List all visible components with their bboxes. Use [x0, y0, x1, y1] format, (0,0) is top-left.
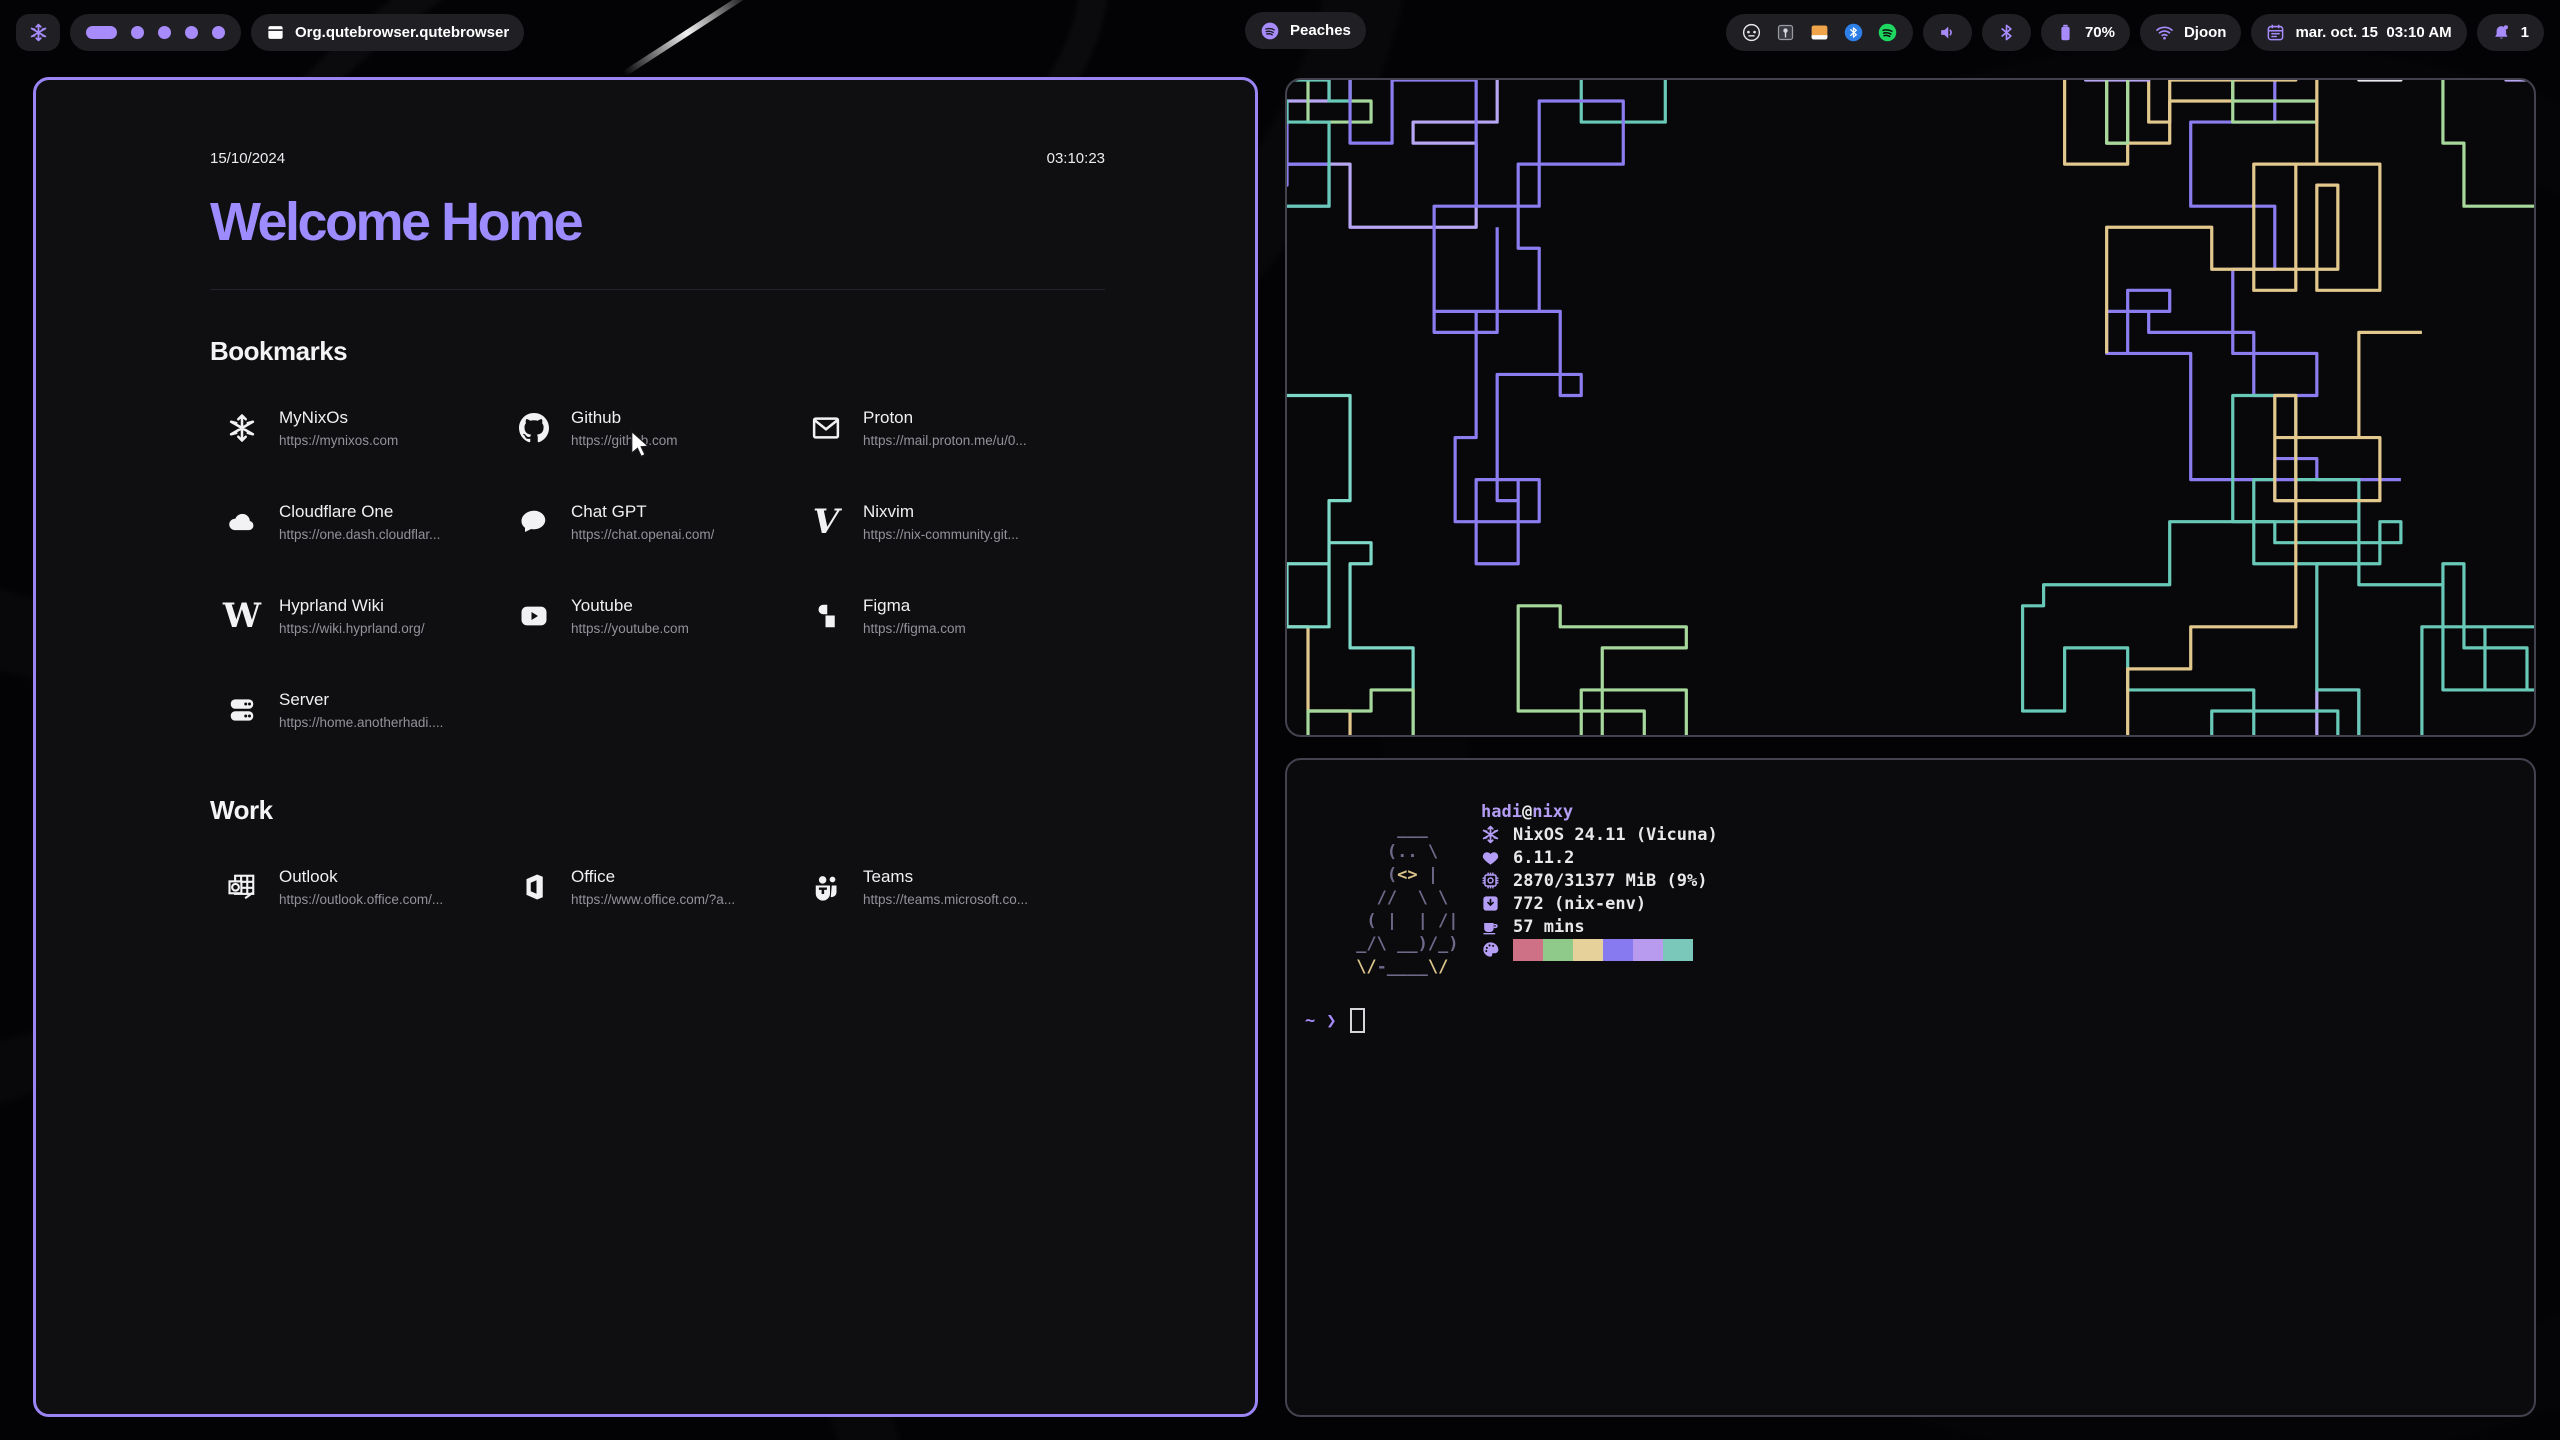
- calendar-icon: [2266, 23, 2285, 42]
- palette-swatch: [1573, 939, 1603, 961]
- palette-icon: [1481, 940, 1500, 959]
- focused-window-pill: Org.qutebrowser.qutebrowser: [251, 14, 524, 51]
- palette-swatch: [1633, 939, 1663, 961]
- bluetooth-icon: [1997, 23, 2016, 42]
- workspaces-indicator[interactable]: [70, 14, 241, 51]
- startpage-date: 15/10/2024: [210, 150, 285, 167]
- battery-indicator[interactable]: 70%: [2041, 14, 2130, 51]
- workspace-dot[interactable]: [212, 26, 225, 39]
- bookmark-url: https://mynixos.com: [279, 433, 398, 448]
- fastfetch-value: NixOS 24.11 (Vicuna): [1513, 825, 1718, 845]
- bar-left-cluster: Org.qutebrowser.qutebrowser: [16, 14, 524, 51]
- packages-box-icon: [1481, 894, 1500, 913]
- ascii-line: ( | | /|: [1305, 910, 1459, 933]
- system-tray[interactable]: [1726, 14, 1913, 51]
- fastfetch-row: 57 mins: [1481, 915, 1718, 938]
- bookmark-url: https://mail.proton.me/u/0...: [863, 433, 1027, 448]
- office-icon: [514, 867, 554, 907]
- notification-count: 1: [2521, 24, 2529, 41]
- bookmark-item-office[interactable]: Officehttps://www.office.com/?a...: [502, 858, 794, 916]
- pipes-terminal-window[interactable]: [1285, 78, 2536, 737]
- bar-right-cluster: 70% Djoon mar. oct. 15 03:10 AM 1: [1726, 14, 2544, 51]
- fastfetch-value: 6.11.2: [1513, 848, 1574, 868]
- bookmark-name: Office: [571, 867, 735, 887]
- bookmark-url: https://github.com: [571, 433, 678, 448]
- fastfetch-palette-row: [1481, 938, 1718, 961]
- bookmark-name: Teams: [863, 867, 1028, 887]
- workspace-active[interactable]: [86, 26, 117, 39]
- bookmark-item-hyprland-wiki[interactable]: WHyprland Wikihttps://wiki.hyprland.org/: [210, 587, 502, 645]
- bookmark-grid: MyNixOshttps://mynixos.comGithubhttps://…: [210, 399, 1105, 739]
- ascii-line: \/-____\/: [1305, 956, 1459, 979]
- ascii-line: ___: [1305, 818, 1459, 841]
- bookmark-url: https://outlook.office.com/...: [279, 892, 443, 907]
- outlook-icon: [222, 867, 262, 907]
- fastfetch-value: 57 mins: [1513, 917, 1585, 937]
- mail-icon: [806, 408, 846, 448]
- bookmark-url: https://home.anotherhadi....: [279, 715, 443, 730]
- focused-window-title: Org.qutebrowser.qutebrowser: [295, 24, 509, 41]
- bookmark-item-teams[interactable]: Teamshttps://teams.microsoft.co...: [794, 858, 1086, 916]
- files-tray-icon[interactable]: [1809, 22, 1830, 43]
- workspace-dot[interactable]: [131, 26, 144, 39]
- uptime-mug-icon: [1481, 917, 1500, 936]
- desktop: Org.qutebrowser.qutebrowser Peaches 70% …: [0, 0, 2560, 1440]
- bookmark-item-cloudflare-one[interactable]: Cloudflare Onehttps://one.dash.cloudflar…: [210, 493, 502, 551]
- ascii-line: (.. \: [1305, 841, 1459, 864]
- ascii-line: // \ \: [1305, 887, 1459, 910]
- bookmark-name: Nixvim: [863, 502, 1019, 522]
- bookmark-name: Proton: [863, 408, 1027, 428]
- bookmark-grid: Outlookhttps://outlook.office.com/...Off…: [210, 858, 1105, 916]
- github-icon: [514, 408, 554, 448]
- camera-tray-icon[interactable]: [1741, 22, 1762, 43]
- fastfetch-info: hadi@nixyNixOS 24.11 (Vicuna)6.11.22870/…: [1481, 800, 1718, 961]
- nixvim-letter-icon: V: [806, 502, 846, 542]
- bookmark-name: Cloudflare One: [279, 502, 440, 522]
- bookmark-url: https://youtube.com: [571, 621, 689, 636]
- bookmark-name: Server: [279, 690, 443, 710]
- divider: [210, 289, 1105, 290]
- bookmark-url: https://chat.openai.com/: [571, 527, 714, 542]
- bookmark-item-proton[interactable]: Protonhttps://mail.proton.me/u/0...: [794, 399, 1086, 457]
- kernel-heart-icon: [1481, 848, 1500, 867]
- nixos-icon: [222, 408, 262, 448]
- workspace-dot[interactable]: [185, 26, 198, 39]
- bookmark-item-outlook[interactable]: Outlookhttps://outlook.office.com/...: [210, 858, 502, 916]
- status-bar: Org.qutebrowser.qutebrowser Peaches 70% …: [0, 12, 2560, 52]
- page-title: Welcome Home: [210, 191, 1105, 253]
- bookmark-item-figma[interactable]: Figmahttps://figma.com: [794, 587, 1086, 645]
- fastfetch-value: 772 (nix-env): [1513, 894, 1646, 914]
- chat-icon: [514, 502, 554, 542]
- spotify-tray-icon[interactable]: [1877, 22, 1898, 43]
- clock-pill[interactable]: mar. oct. 15 03:10 AM: [2251, 14, 2466, 51]
- bookmark-url: https://www.office.com/?a...: [571, 892, 735, 907]
- fastfetch-row: 2870/31377 MiB (9%): [1481, 869, 1718, 892]
- prompt-path: ~: [1305, 1011, 1315, 1031]
- bookmark-name: Github: [571, 408, 678, 428]
- network-indicator[interactable]: Djoon: [2140, 14, 2242, 51]
- section-heading: Work: [210, 795, 1105, 826]
- bluetooth-tray-icon[interactable]: [1843, 22, 1864, 43]
- startpage-header: 15/10/2024 03:10:23: [210, 150, 1105, 167]
- startpage-sections: BookmarksMyNixOshttps://mynixos.comGithu…: [210, 336, 1105, 916]
- wifi-icon: [2155, 23, 2174, 42]
- speaker-icon: [1938, 23, 1957, 42]
- memory-chip-icon: [1481, 871, 1500, 890]
- bookmark-item-chat-gpt[interactable]: Chat GPThttps://chat.openai.com/: [502, 493, 794, 551]
- bookmark-name: Figma: [863, 596, 966, 616]
- terminal-cursor: [1350, 1008, 1365, 1033]
- section-bookmarks: BookmarksMyNixOshttps://mynixos.comGithu…: [210, 336, 1105, 739]
- keepass-tray-icon[interactable]: [1775, 22, 1796, 43]
- bookmark-url: https://teams.microsoft.co...: [863, 892, 1028, 907]
- youtube-icon: [514, 596, 554, 636]
- bluetooth-button[interactable]: [1982, 14, 2031, 51]
- app-launcher-button[interactable]: [16, 14, 60, 51]
- media-player-pill[interactable]: Peaches: [1245, 12, 1366, 49]
- bookmark-url: https://one.dash.cloudflar...: [279, 527, 440, 542]
- terminal-color-palette: [1513, 939, 1693, 961]
- section-heading: Bookmarks: [210, 336, 1105, 367]
- cloud-icon: [222, 502, 262, 542]
- fastfetch-row: NixOS 24.11 (Vicuna): [1481, 823, 1718, 846]
- pipes-canvas: [1287, 80, 2534, 735]
- palette-swatch: [1663, 939, 1693, 961]
- battery-icon: [2056, 23, 2075, 42]
- palette-swatch: [1543, 939, 1573, 961]
- fastfetch-user-host: hadi@nixy: [1481, 800, 1718, 823]
- nix-snowflake-icon: [29, 23, 48, 42]
- startpage-time: 03:10:23: [1047, 150, 1105, 167]
- nix-snowflake-icon: [1481, 825, 1500, 844]
- qutebrowser-startpage-window: 15/10/2024 03:10:23 Welcome Home Bookmar…: [33, 77, 1258, 1417]
- window-icon: [266, 23, 285, 42]
- bookmark-item-nixvim[interactable]: VNixvimhttps://nix-community.git...: [794, 493, 1086, 551]
- ascii-line: _/\ __)/_): [1305, 933, 1459, 956]
- ascii-line: (<> |: [1305, 864, 1459, 887]
- palette-swatch: [1603, 939, 1633, 961]
- bookmark-url: https://figma.com: [863, 621, 966, 636]
- figma-icon: [806, 596, 846, 636]
- fastfetch-row: 6.11.2: [1481, 846, 1718, 869]
- notifications-pill[interactable]: 1: [2477, 14, 2544, 51]
- bookmark-name: Hyprland Wiki: [279, 596, 425, 616]
- bookmark-name: MyNixOs: [279, 408, 398, 428]
- fastfetch-terminal-window[interactable]: ___ (.. \ (<> | // \ \ ( | | /| _/\ __)/…: [1285, 758, 2536, 1417]
- bell-icon: [2492, 23, 2511, 42]
- section-work: WorkOutlookhttps://outlook.office.com/..…: [210, 795, 1105, 916]
- shell-prompt[interactable]: ~ ❯: [1305, 1008, 1365, 1033]
- wikipedia-letter-icon: W: [222, 596, 262, 636]
- fastfetch-ascii-art: ___ (.. \ (<> | // \ \ ( | | /| _/\ __)/…: [1305, 818, 1459, 979]
- bookmark-item-youtube[interactable]: Youtubehttps://youtube.com: [502, 587, 794, 645]
- fastfetch-value: 2870/31377 MiB (9%): [1513, 871, 1707, 891]
- battery-percent: 70%: [2085, 24, 2115, 41]
- bookmark-url: https://wiki.hyprland.org/: [279, 621, 425, 636]
- bookmark-url: https://nix-community.git...: [863, 527, 1019, 542]
- bookmark-name: Chat GPT: [571, 502, 714, 522]
- teams-icon: [806, 867, 846, 907]
- bookmark-name: Youtube: [571, 596, 689, 616]
- clock-label: mar. oct. 15 03:10 AM: [2295, 24, 2451, 41]
- spotify-icon: [1260, 21, 1280, 41]
- palette-swatch: [1513, 939, 1543, 961]
- volume-button[interactable]: [1923, 14, 1972, 51]
- prompt-symbol: ❯: [1326, 1011, 1336, 1031]
- bookmark-name: Outlook: [279, 867, 443, 887]
- server-icon: [222, 690, 262, 730]
- bookmark-item-mynixos[interactable]: MyNixOshttps://mynixos.com: [210, 399, 502, 457]
- mouse-cursor: [630, 430, 656, 460]
- fastfetch-row: 772 (nix-env): [1481, 892, 1718, 915]
- workspace-dot[interactable]: [158, 26, 171, 39]
- media-track-label: Peaches: [1290, 22, 1351, 39]
- network-ssid: Djoon: [2184, 24, 2227, 41]
- bookmark-item-server[interactable]: Serverhttps://home.anotherhadi....: [210, 681, 502, 739]
